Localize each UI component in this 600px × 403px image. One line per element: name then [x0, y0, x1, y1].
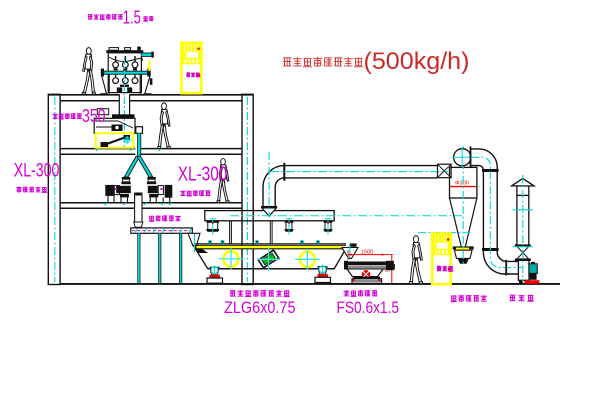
- svg-text:(500kg/h): (500kg/h): [364, 48, 470, 75]
- svg-text:XL-300: XL-300: [14, 161, 60, 182]
- svg-text:Φ300: Φ300: [455, 181, 469, 187]
- svg-text:XL-300: XL-300: [178, 164, 228, 186]
- svg-text:1500: 1500: [361, 250, 374, 256]
- svg-text:1.5: 1.5: [123, 8, 141, 28]
- svg-text:ZLG6x0.75: ZLG6x0.75: [224, 298, 296, 317]
- svg-text:FS0.6x1.5: FS0.6x1.5: [337, 298, 400, 317]
- svg-text:350: 350: [82, 106, 106, 126]
